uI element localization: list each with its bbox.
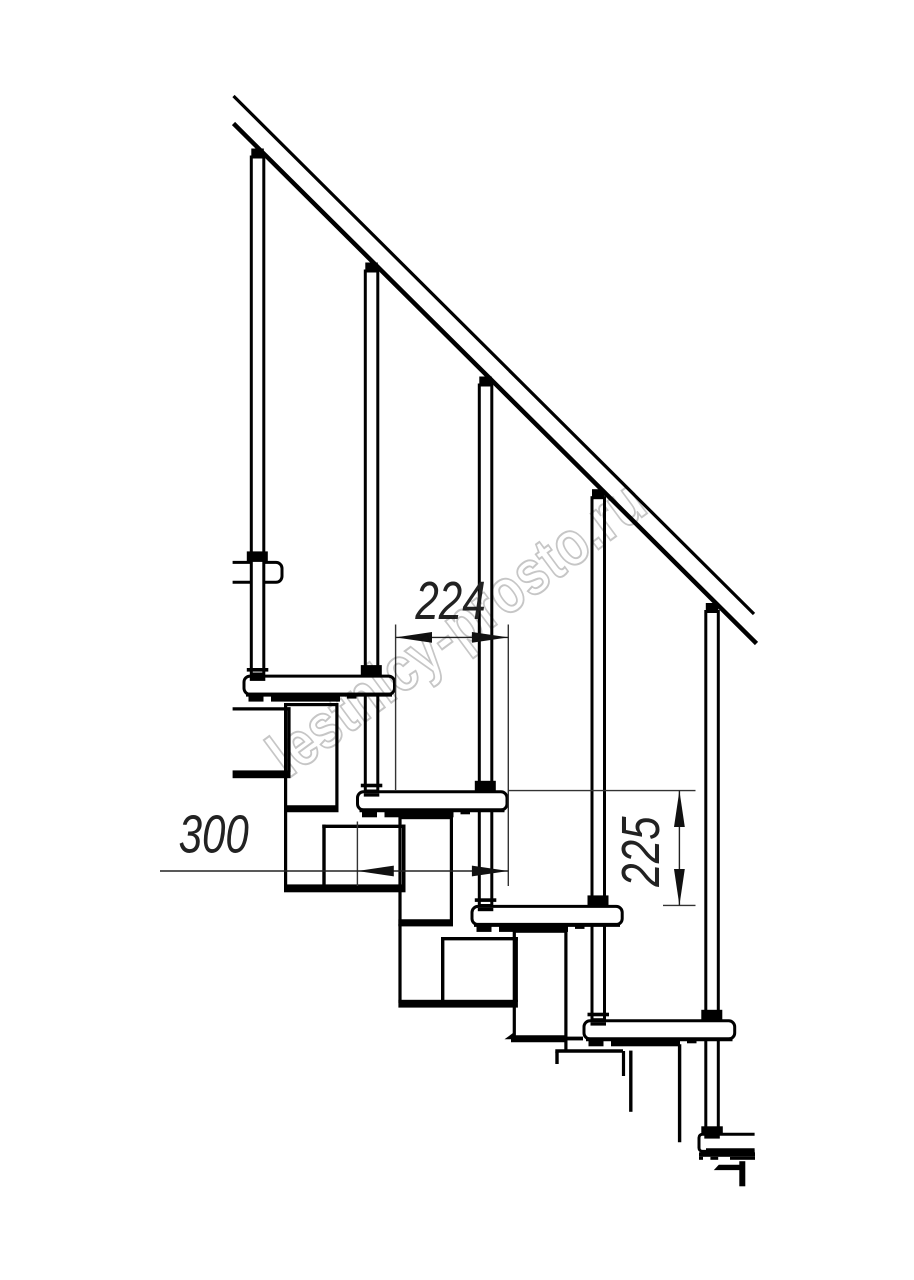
- svg-text:225: 225: [611, 816, 671, 888]
- svg-text:300: 300: [179, 805, 249, 865]
